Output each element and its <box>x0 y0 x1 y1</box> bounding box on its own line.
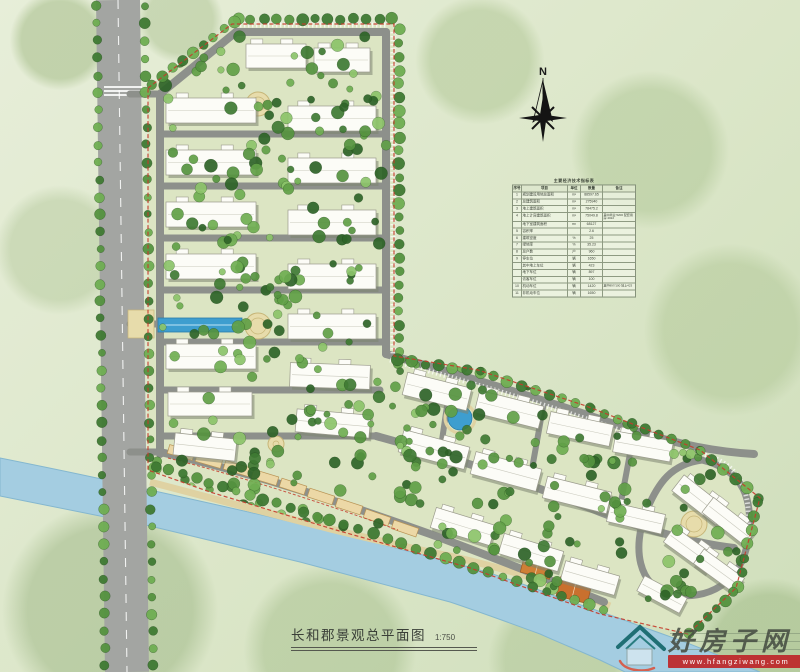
table-cell <box>568 228 581 235</box>
indicators-table: 主要经济技术指标表 序号项目单位数量备注1规划建设用地总面积m²88597.65… <box>512 178 638 290</box>
table-cell: 辆 <box>568 276 581 283</box>
table-cell: 辆 <box>568 269 581 276</box>
table-cell: 辆 <box>568 283 581 290</box>
table-cell: 423 <box>581 263 603 270</box>
plan-title: 长和郡景观总平面图 1:750 <box>291 624 477 651</box>
table-cell: 其中地上车位 <box>522 263 568 270</box>
table-cell: 辆 <box>568 290 581 297</box>
table-cell: 备注 <box>603 185 636 192</box>
table-cell: 1650 <box>581 290 603 297</box>
table-cell: 5 <box>513 228 522 235</box>
table-cell: 地下车位 <box>522 269 568 276</box>
table-cell: 9 <box>513 256 522 263</box>
watermark: 好房子网 www.hfangziwang.com <box>612 617 800 672</box>
table-cell <box>603 242 636 249</box>
table-cell: % <box>568 235 581 242</box>
table-cell: 访客车位 <box>522 276 568 283</box>
table-cell: m² <box>568 192 581 199</box>
table-cell: 78475.2 <box>581 206 603 213</box>
table-cell: m² <box>568 221 581 228</box>
table-cell <box>603 192 636 199</box>
house-icon <box>612 619 670 671</box>
indicators-table-title: 主要经济技术指标表 <box>512 178 636 184</box>
table-cell: 88597.65 <box>581 192 603 199</box>
table-cell: 1 <box>513 192 522 199</box>
watermark-url-bar[interactable]: www.hfangziwang.com <box>668 655 800 668</box>
title-underline <box>291 650 477 651</box>
site-plan-canvas: N 主要经济技术指标表 序号项目单位数量备注1规划建设用地总面积m²88597.… <box>0 0 800 672</box>
indicators-table-grid: 序号项目单位数量备注1规划建设用地总面积m²88597.652总建筑面积m²27… <box>512 185 636 298</box>
table-cell <box>603 290 636 297</box>
table-cell: 6 <box>513 235 522 242</box>
building <box>166 93 259 126</box>
table-cell: 机动车位 <box>522 283 568 290</box>
table-cell: m² <box>568 199 581 206</box>
crosswalk-mark <box>104 86 142 88</box>
table-cell <box>603 235 636 242</box>
table-cell: 单位 <box>568 185 581 192</box>
table-cell: 2 <box>513 199 522 206</box>
table-cell: 1650 <box>581 256 603 263</box>
table-cell: 2.6 <box>581 228 603 235</box>
table-cell <box>513 263 522 270</box>
table-cell <box>603 228 636 235</box>
watermark-site-name[interactable]: 好房子网 <box>668 621 800 658</box>
table-cell: 地上建筑面积 <box>522 206 568 213</box>
table-cell: 960 <box>581 249 603 256</box>
building <box>246 39 309 71</box>
table-cell <box>513 276 522 283</box>
table-cell: 地下室建筑面积 <box>522 221 568 228</box>
table-cell: 11 <box>513 290 522 297</box>
table-cell: 项目 <box>522 185 568 192</box>
table-cell: 4 <box>513 213 522 222</box>
plan-title-text: 长和郡景观总平面图 <box>291 624 426 644</box>
table-cell <box>603 221 636 228</box>
table-cell: 序号 <box>513 185 522 192</box>
table-cell: m² <box>568 213 581 222</box>
table-cell: 35.23 <box>581 242 603 249</box>
table-cell <box>603 256 636 263</box>
plan-scale-label: 1:750 <box>435 633 455 642</box>
table-cell: 户 <box>568 249 581 256</box>
table-cell: 275940 <box>581 199 603 206</box>
table-cell: 总建筑面积 <box>522 199 568 206</box>
table-cell: 25 <box>581 235 603 242</box>
table-cell: m² <box>568 206 581 213</box>
table-cell: 1420 <box>581 283 603 290</box>
table-cell: 其中897/100 地上423 <box>603 283 636 290</box>
table-cell: 7 <box>513 242 522 249</box>
table-cell <box>603 249 636 256</box>
table-cell: 辆 <box>568 263 581 270</box>
compass-n-label: N <box>539 66 547 78</box>
table-cell: 其中商业:5200 配套用房:4022 <box>603 213 636 222</box>
table-cell: 10 <box>513 283 522 290</box>
table-cell: 100 <box>581 276 603 283</box>
table-cell: 绿地率 <box>522 242 568 249</box>
table-cell: 容积率 <box>522 228 568 235</box>
table-cell: 75049.8 <box>581 213 603 222</box>
table-cell <box>603 206 636 213</box>
table-cell: 897 <box>581 269 603 276</box>
table-cell: 68127 <box>581 221 603 228</box>
table-cell <box>513 269 522 276</box>
table-cell: % <box>568 242 581 249</box>
table-cell: 数量 <box>581 185 603 192</box>
building <box>288 205 379 238</box>
watermark-url-text: www.hfangziwang.com <box>683 657 790 666</box>
table-cell: 辆 <box>568 256 581 263</box>
compass-north-arrow: N <box>510 60 576 154</box>
table-cell <box>603 263 636 270</box>
table-cell: 规划建设用地总面积 <box>522 192 568 199</box>
table-cell: 3 <box>513 206 522 213</box>
north-arrow-icon: N <box>510 60 576 154</box>
table-cell: 非机动车位 <box>522 290 568 297</box>
table-cell <box>603 276 636 283</box>
table-cell: 停车位 <box>522 256 568 263</box>
table-cell <box>603 269 636 276</box>
master-plan-map <box>0 0 800 672</box>
table-cell: 建筑密度 <box>522 235 568 242</box>
table-cell <box>603 199 636 206</box>
table-cell: 8 <box>513 249 522 256</box>
table-cell: 地上计容建筑面积 <box>522 213 568 222</box>
table-cell <box>513 221 522 228</box>
table-cell: 总户数 <box>522 249 568 256</box>
